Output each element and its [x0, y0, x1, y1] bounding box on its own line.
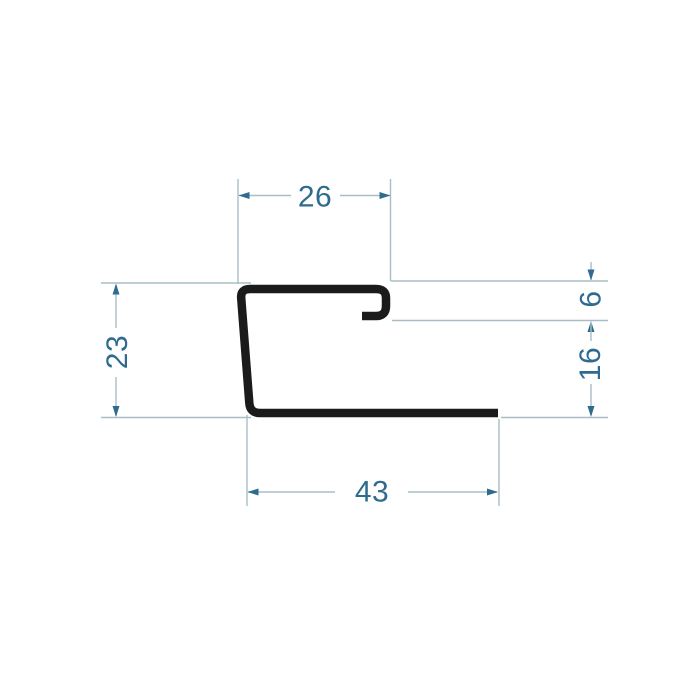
dim-26-arrow-left-icon [239, 192, 250, 199]
dim-43-arrow-right-icon [487, 489, 498, 496]
technical-drawing: 26 23 6 16 43 [0, 0, 700, 700]
dim-6-label: 6 [575, 290, 608, 307]
drawing-canvas: 26 23 6 16 43 [0, 0, 700, 700]
dim-23-label: 23 [101, 335, 134, 369]
profile-outline [241, 289, 498, 413]
dim-top-width: 26 [239, 181, 391, 214]
dim-23-arrow-bottom-icon [113, 406, 120, 417]
dim-bottom-width: 43 [248, 476, 499, 509]
dim-26-arrow-right-icon [380, 192, 391, 199]
dim-26-label: 26 [298, 181, 332, 214]
dim-left-height: 23 [101, 284, 134, 418]
dim-43-arrow-left-icon [248, 489, 259, 496]
dim-16-arrow-down-icon [588, 406, 595, 417]
extension-lines [101, 179, 608, 506]
dim-16-label: 16 [574, 347, 607, 381]
dim-hook-depth: 6 [575, 262, 608, 308]
dim-23-arrow-top-icon [113, 284, 120, 295]
dim-right-lower-height: 16 [574, 321, 607, 417]
dim-6-arrow-down-icon [588, 270, 595, 281]
dim-43-label: 43 [355, 476, 389, 509]
